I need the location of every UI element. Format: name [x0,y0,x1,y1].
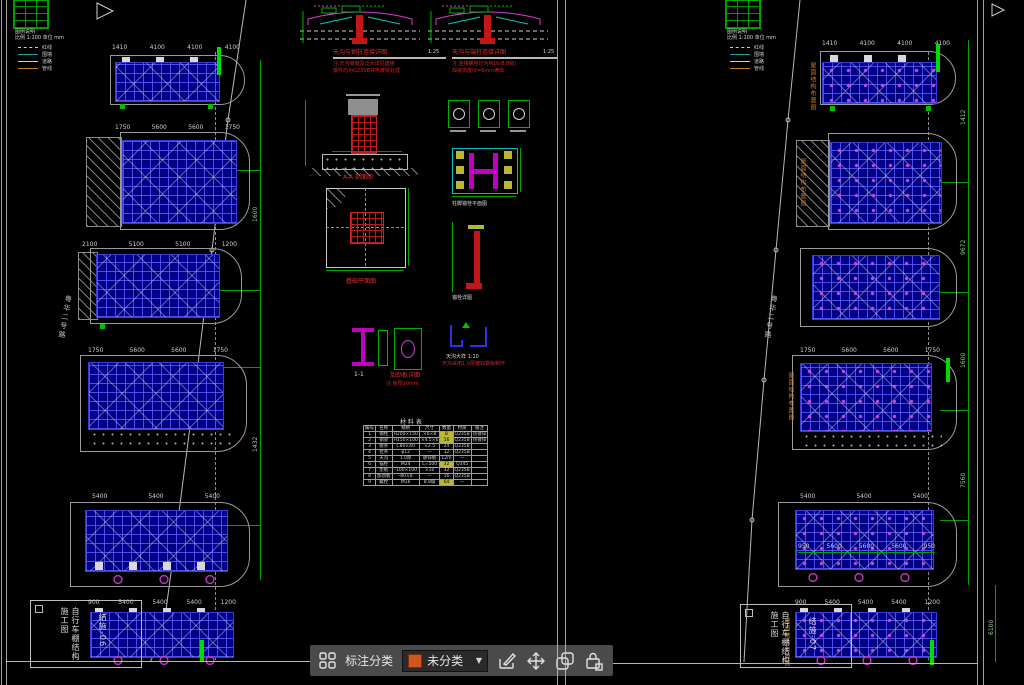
table-cell: 加劲板 [376,474,393,480]
sheet-divider-line [565,0,566,685]
section-label: A-A 剖面图 [343,174,373,181]
grid-tick [100,324,105,329]
table-cell: Q235B [453,468,471,474]
table-row: 9螺栓M168.8级64— [364,480,488,486]
dim-label: 5400 [92,493,107,500]
roof-plan-label: 屋面结构布置图 [798,158,807,207]
dim-label: 6100 [988,620,995,635]
dimension-line-horizontal [798,552,935,553]
grid-tick [120,104,125,109]
detail-note: 钢件均为Q235B并热镀锌处理 [333,68,400,74]
plan-block-a [115,62,220,102]
bolt-hole [513,108,525,120]
bolt-hole [453,108,465,120]
dim-accent [217,47,221,75]
bolt-detail [448,100,470,128]
title-block-text: 自行车棚结构施工图 [769,611,791,667]
legend-label: 围墙 [42,51,52,58]
dim-accent [200,640,204,662]
table-cell: Q235B [453,444,471,450]
plan-block-c [96,254,220,318]
annotation-toolbar: 标注分类 未分类 ▼ [310,645,613,676]
dim-label: 1410 [822,40,837,47]
table-header: 编号 [364,426,376,432]
table-cell: L=500 [419,462,440,468]
dim-label: 1600 [252,207,259,222]
plan-block-r5 [795,510,934,570]
column-section [351,115,377,154]
dim-row: 950 5600 5600 5600 950 [798,543,935,550]
h-beam-flange [493,153,498,189]
dim-label: 5600 [152,124,167,131]
legend-line-dashed [730,47,750,48]
bolt-detail [508,100,530,128]
dim-label: 1750 [88,347,103,354]
dim-label: 1432 [252,437,259,452]
move-icon[interactable] [526,650,546,671]
anchor-bolt [504,181,512,189]
legend-entries: 红线 围墙 道路 管线 [18,44,52,72]
dim-accent [946,358,950,382]
detail-scale: 1:25 [543,49,554,56]
grid-icon[interactable] [319,650,336,671]
detail-note: 注:连接螺栓均为M16(8.8级) [452,61,516,67]
dim-label: 4100 [897,40,912,47]
canopy-detail-2 [428,3,548,47]
dimension-line-vertical [260,60,261,580]
title-block-number: 结施-07 [807,617,818,651]
table-row: 7垫板-100×100×1032Q235B [364,468,488,474]
column-cap [348,99,378,115]
bolt-washer [468,225,484,229]
dim-label: 5600 [827,543,842,550]
gutter-profile [446,320,498,354]
jbolt-label: 锚栓详图 [452,295,472,302]
title-block: 自行车棚结构施工图 结施-07 [740,604,852,668]
table-cell: H150×100 [392,438,419,444]
legend-label: 围墙 [754,51,764,58]
dim-row: 1750 5600 5600 1750 [88,347,228,354]
dim-label: 5400 [152,599,167,606]
column-base-markers [95,562,215,570]
plate-note: 注:板厚10mm [386,381,419,387]
legend-label: 管线 [42,65,52,72]
dim-label: 7560 [960,473,967,488]
bolt-hole [483,108,495,120]
dimension-line-vertical [452,222,453,292]
legend-note: 比例 1:100 单位 mm [727,35,776,42]
dim-label: 5400 [800,493,815,500]
legend-label: 红线 [42,44,52,51]
table-cell: 9 [364,480,376,486]
dim-label: 5400 [205,493,220,500]
dimension-line-horizontal [452,196,516,197]
table-row: 1钢柱H200×150×6×88Q235B热镀锌 [364,432,488,438]
grid-tick [926,106,931,111]
chevron-down-icon: ▼ [476,656,482,665]
edit-icon[interactable] [497,650,517,671]
dim-label: 5400 [187,599,202,606]
dim-label: 1412 [960,110,967,125]
plate-detail [394,328,422,370]
canopy-detail-1 [300,3,420,47]
legend-line-dashed [18,47,38,48]
dim-label: 1200 [925,599,940,606]
baseplate-label: 柱脚锚栓平面图 [452,201,487,208]
table-cell: H200×150 [392,432,419,438]
legend-line-white [730,61,750,62]
detail-note: 注:天沟坡度及泛水详见建施 [333,61,395,67]
table-cell: M16 [392,480,419,486]
legend-table [725,0,761,29]
dim-label: 1750 [225,124,240,131]
h-beam-web [474,169,493,174]
anchor-bolt [456,166,464,174]
table-cell: 64 [440,480,453,486]
title-block-number: 结施-06 [97,613,108,647]
annotation-marks [346,94,380,96]
dim-label: 1200 [222,241,237,248]
dim-label: 1750 [213,347,228,354]
table-cell: 12m [440,456,453,462]
table-cell: -100×100 [392,468,419,474]
dim-label: 5400 [856,493,871,500]
dim-label: 4100 [225,44,240,51]
paving-dots [90,430,235,448]
dim-label: 5600 [883,347,898,354]
column-footprint [350,212,384,244]
table-cell: — [453,480,471,486]
roof-plan-label: 屋面结构布置图 [808,62,817,111]
anchor-bolt [456,151,464,159]
dim-label: 5400 [858,599,873,606]
dim-label: 5600 [859,543,874,550]
north-arrow-icon [97,3,113,19]
plate-label: 加劲板详图 [390,372,420,379]
dim-label: 4100 [187,44,202,51]
category-dropdown[interactable]: 未分类 ▼ [402,650,488,672]
dim-label: 950 [798,543,809,550]
slot-hole [401,340,415,358]
dim-label: 1750 [925,347,940,354]
title-underline [452,57,557,59]
dimension-line-vertical [968,40,969,585]
bore-hole-markers [95,574,235,585]
dim-label: 5100 [129,241,144,248]
dim-label: 5600 [891,543,906,550]
dim-label: 5600 [130,347,145,354]
legend-entries: 红线 围墙 道路 管线 [730,44,764,72]
sheet-divider-line [557,0,558,685]
dim-row: 1410 4100 4100 4100 [822,40,950,47]
sheet-edge-line [6,0,7,685]
dim-label: 4100 [150,44,165,51]
title-underline [333,57,446,59]
section-mark: 1-1 [354,371,364,378]
plan-block-d [88,362,224,430]
category-color-swatch [408,654,422,668]
grid-tick [208,104,213,109]
legend-note: 比例 1:100 单位 mm [15,35,64,42]
title-block-text: 自行车棚结构施工图 [59,607,81,667]
table-cell: Q235B [453,438,471,444]
dimension-line-vertical [305,100,306,166]
roof-plan-label: 屋面结构布置图 [786,372,795,421]
legend-label: 道路 [754,58,764,65]
beam-web [361,332,365,362]
dim-label: 1750 [115,124,130,131]
plan-block-r2 [830,142,942,224]
dim-row: 1750 5600 5600 1750 [800,347,940,354]
material-table: 编号名称规格尺寸数量材质备注1钢柱H200×150×6×88Q235B热镀锌2钢… [363,425,488,486]
detail-scale: 1:25 [428,49,439,56]
annotation-marks [450,130,466,132]
table-row: 2钢梁H150×100×4.5×616Q235B热镀锌 [364,438,488,444]
title-block-mark [745,609,753,617]
dim-label: 5400 [148,493,163,500]
dim-label: 950 [924,543,935,550]
dim-label: 1200 [221,599,236,606]
lock-icon[interactable] [584,650,604,671]
plan-label: 基础平面图 [346,278,376,285]
dim-accent [936,44,940,72]
detail-note: 焊缝高度hf=6mm满焊 [452,68,504,74]
paving-dots [802,432,942,448]
dim-label: 2100 [82,241,97,248]
table-cell: ×4.5×6 [419,438,440,444]
legend-line-cyan [18,54,38,55]
table-cell: Q235B [453,432,471,438]
plan-block-r1 [822,62,937,104]
bore-hole-markers [790,572,940,583]
dim-label: 1600 [960,353,967,368]
dim-row: 1750 5600 5600 1750 [115,124,240,131]
north-arrow-right-icon [992,4,1004,16]
annotation-marks [510,130,526,132]
dimension-line-vertical [408,188,409,266]
dim-label: 1750 [800,347,815,354]
table-cell: Q235B [453,450,471,456]
slope-hatch [86,137,122,227]
table-row: 3檩条C80×40×2.524Q235B [364,444,488,450]
dim-label: 4100 [860,40,875,47]
baseplate-plan [452,148,518,194]
dim-label: 5600 [171,347,186,354]
category-label: 标注分类 [345,652,393,669]
plan-block-b [122,140,237,224]
dim-label: 5600 [188,124,203,131]
dim-accent [930,640,934,665]
table-cell [471,480,488,486]
dim-row: 2100 5100 5100 1200 [82,241,237,248]
beam-flange [352,362,374,366]
anchor-bolt-hook [466,283,482,289]
dim-label: 9672 [960,240,967,255]
detail-title: 天沟与钢柱连接详图 [333,49,387,56]
dimension-line-horizontal [326,270,404,271]
grid-tick [830,106,835,111]
gutter-note: 天沟采用1.0厚镀锌钢板制作 [442,361,505,367]
legend-label: 道路 [42,58,52,65]
title-block-mark [35,605,43,613]
sheet-divider-line [983,0,984,685]
legend-table [13,0,49,29]
sheet-bottom-line [566,663,977,664]
stiffener-plate [378,330,388,366]
table-cell: Q235B [453,474,471,480]
title-block: 自行车棚结构施工图 结施-06 [30,600,142,668]
baseplate-line [332,151,402,152]
dim-label: 1410 [112,44,127,51]
category-dropdown-value: 未分类 [427,652,471,669]
sheet-edge-line [1,0,2,685]
dim-row: 5400 5400 5400 [92,493,220,500]
legend-line-orange [730,68,750,69]
legend-label: 管线 [754,65,764,72]
legend-line-white [18,61,38,62]
legend-line-orange [18,68,38,69]
table-cell: 热镀锌 [471,432,488,438]
dimension-line-vertical [520,148,521,192]
dimension-line-vertical [995,585,996,662]
annotation-marks [480,130,496,132]
legend-label: 红线 [754,44,764,51]
dim-label: 5100 [175,241,190,248]
table-cell: 8.8级 [419,480,440,486]
dim-label: 5400 [891,599,906,606]
plan-block-r3 [812,255,940,320]
table-cell: 螺栓 [376,480,393,486]
gutter-label: 天沟大样 1:10 [446,354,479,361]
detail-title: 天沟与端柱连接详图 [452,49,506,56]
plan-block-r4 [800,363,932,432]
dim-row: 5400 5400 5400 [800,493,928,500]
bolt-detail [478,100,500,128]
dim-label: 5600 [842,347,857,354]
table-cell: 热镀锌 [471,438,488,444]
sheet-divider-line [977,0,978,685]
anchor-bolt [504,151,512,159]
cad-canvas[interactable]: 图例说明 比例 1:100 单位 mm 红线 围墙 道路 管线 1600 143… [0,0,1024,685]
anchor-bolt-shank [474,231,480,283]
dim-label: 5400 [913,493,928,500]
anchor-bolt [504,166,512,174]
legend-line-cyan [730,54,750,55]
anchor-bolt [456,181,464,189]
